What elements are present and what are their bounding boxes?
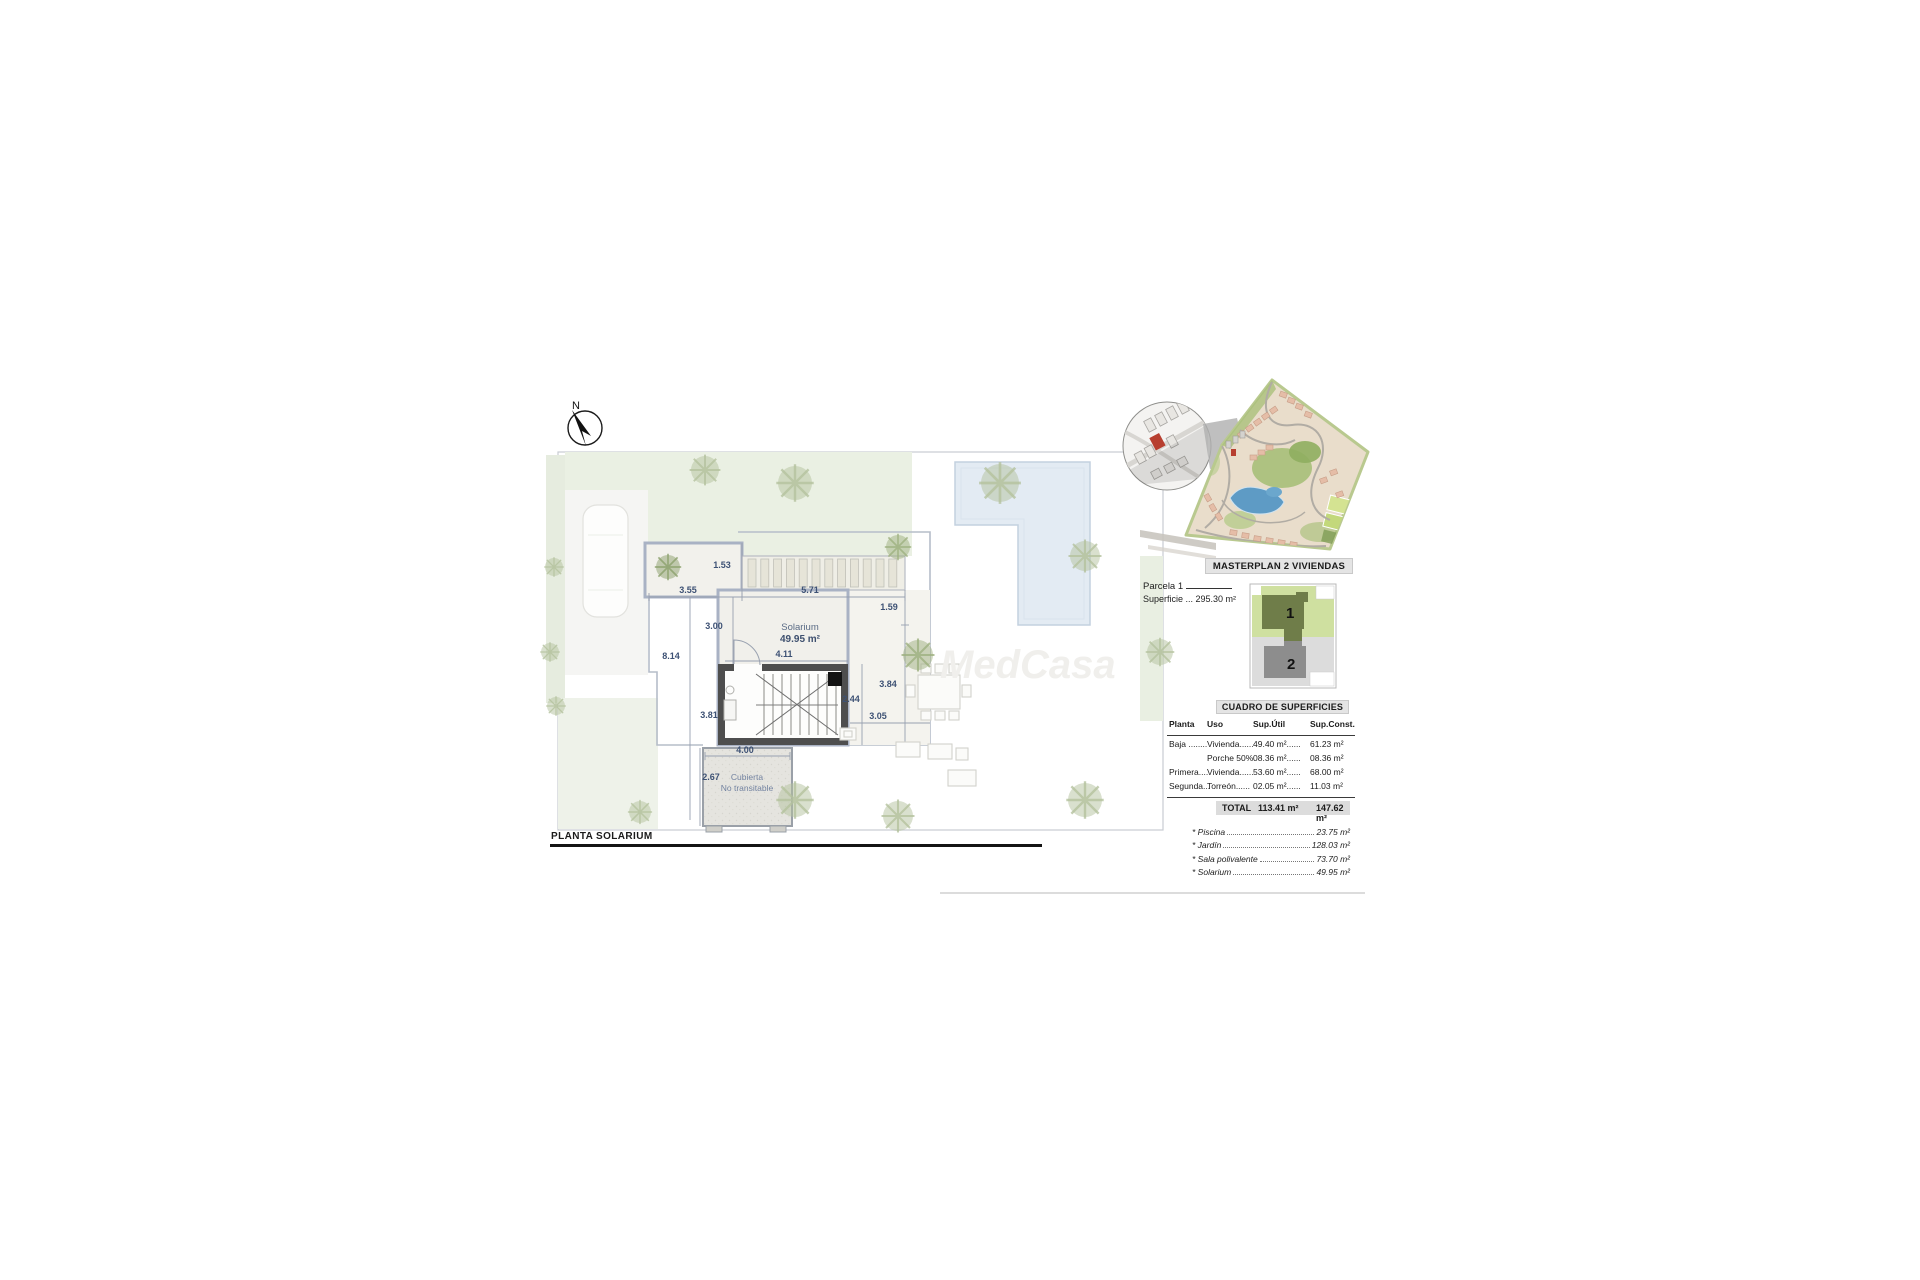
watermark: MedCasa [940, 643, 1116, 687]
cubierta-label-1: Cubierta [731, 772, 763, 782]
table-cell: 08.36 m²...... [1253, 753, 1301, 763]
table-rule [1167, 735, 1355, 736]
table-cell: 49.40 m²...... [1253, 739, 1301, 749]
dimension-label: 2.67 [702, 772, 720, 782]
sun-lounger [928, 744, 952, 759]
unit-2-footprint [1264, 646, 1306, 678]
extras-value: 128.03 m² [1312, 840, 1350, 850]
panel-bottom-rule [940, 892, 1365, 894]
dimension-label: 1.59 [880, 602, 898, 612]
col-sup-const: Sup.Const. [1310, 719, 1355, 729]
extras-value: 23.75 m² [1316, 827, 1350, 837]
table-cell: Vivienda...... [1207, 739, 1254, 749]
total-sup-const: 147.62 m² [1316, 803, 1350, 823]
col-planta: Planta [1169, 719, 1195, 729]
sun-lounger [948, 770, 976, 786]
extras-row: * Solarium49.95 m² [1192, 864, 1350, 877]
cuadro-header: CUADRO DE SUPERFICIES [1216, 700, 1349, 714]
dimension-label: 4.00 [736, 745, 754, 755]
table-row: Porche 50%08.36 m²......08.36 m² [1167, 753, 1355, 767]
table-cell: 53.60 m²...... [1253, 767, 1301, 777]
table-cell: Torreón...... [1207, 781, 1250, 791]
col-sup-util: Sup.Útil [1253, 719, 1285, 729]
table-body: Baja ........Vivienda......49.40 m².....… [1167, 739, 1355, 795]
table-cell: Segunda... [1169, 781, 1210, 791]
extras-label: * Solarium [1192, 867, 1231, 877]
parcel-units-diagram: 1 2 [1250, 584, 1336, 688]
table-cell: Vivienda...... [1207, 767, 1254, 777]
compass-n-label: N [572, 400, 580, 412]
leader-dots [1260, 861, 1315, 862]
leader-dots [1223, 847, 1309, 848]
dimension-label: 3.05 [869, 711, 887, 721]
dimension-label: 3.00 [705, 621, 723, 631]
dimension-label: 8.14 [662, 651, 680, 661]
dimension-label: 3.84 [879, 679, 897, 689]
leader-dots [1233, 874, 1314, 875]
col-uso: Uso [1207, 719, 1223, 729]
table-cell: Baja ........ [1169, 739, 1207, 749]
extras-list: * Piscina23.75 m²* Jardín128.03 m²* Sala… [1192, 824, 1350, 877]
title-rule [550, 844, 1042, 847]
surfaces-table: Planta Uso Sup.Útil Sup.Const. Baja ....… [1167, 719, 1355, 815]
solarium-label: Solarium [781, 622, 819, 633]
table-cell: Porche 50% [1207, 753, 1253, 763]
table-cell: 08.36 m² [1310, 753, 1344, 763]
cubierta-label-2: No transitable [721, 783, 774, 793]
solarium-area: 49.95 m² [780, 634, 821, 645]
dimension-label: 1.53 [713, 560, 731, 570]
extras-row: * Jardín128.03 m² [1192, 837, 1350, 850]
parcela-block: Parcela 1 Superficie ... 295.30 m² [1143, 580, 1236, 606]
north-compass: N [568, 400, 602, 446]
table-cell: 02.05 m²...... [1253, 781, 1301, 791]
extras-label: * Sala polivalente [1192, 854, 1258, 864]
table-cell: 61.23 m² [1310, 739, 1344, 749]
total-label: TOTAL [1222, 803, 1251, 813]
dimension-label: 3.81 [700, 710, 718, 720]
table-cell: Primera.... [1169, 767, 1208, 777]
unit-1-number: 1 [1286, 605, 1294, 622]
extras-value: 49.95 m² [1316, 867, 1350, 877]
parcela-underline [1186, 580, 1232, 589]
unit-2-number: 2 [1287, 656, 1295, 673]
dimension-label: 3.55 [679, 585, 697, 595]
leader-dots [1227, 834, 1314, 835]
wc-fixture [724, 700, 736, 720]
table-cell: 68.00 m² [1310, 767, 1344, 777]
parcela-name: Parcela 1 [1143, 581, 1183, 592]
extras-value: 73.70 m² [1316, 854, 1350, 864]
stair-newel [828, 672, 842, 686]
total-sup-util: 113.41 m² [1258, 803, 1299, 813]
extras-label: * Piscina [1192, 827, 1225, 837]
extras-row: * Sala polivalente73.70 m² [1192, 850, 1350, 863]
site-inset-circle [1123, 400, 1212, 490]
dimension-label: 4.11 [775, 649, 792, 659]
table-row: Primera....Vivienda......53.60 m²......6… [1167, 767, 1355, 781]
extras-row: * Piscina23.75 m² [1192, 824, 1350, 837]
dimension-label: 5.71 [801, 585, 819, 595]
plan-sheet: 1.533.555.711.593.008.144.113.842.443.05… [0, 0, 1920, 1280]
table-header-row: Planta Uso Sup.Útil Sup.Const. [1167, 719, 1355, 733]
floorplan-drawing: 1.533.555.711.593.008.144.113.842.443.05… [0, 0, 1920, 1280]
table-rule [1167, 797, 1355, 798]
masterplan-header: MASTERPLAN 2 VIVIENDAS [1205, 558, 1353, 574]
table-row: Baja ........Vivienda......49.40 m².....… [1167, 739, 1355, 753]
car-outline [583, 505, 628, 617]
plan-title: PLANTA SOLARIUM [551, 831, 653, 842]
total-row: TOTAL 113.41 m² 147.62 m² [1216, 801, 1350, 815]
table-row: Segunda...Torreón......02.05 m²......11.… [1167, 781, 1355, 795]
sun-lounger [896, 742, 920, 757]
parcela-superficie: Superficie ... 295.30 m² [1143, 593, 1236, 606]
dimension-label: 2.44 [842, 694, 860, 704]
table-cell: 11.03 m² [1310, 781, 1343, 791]
extras-label: * Jardín [1192, 840, 1221, 850]
